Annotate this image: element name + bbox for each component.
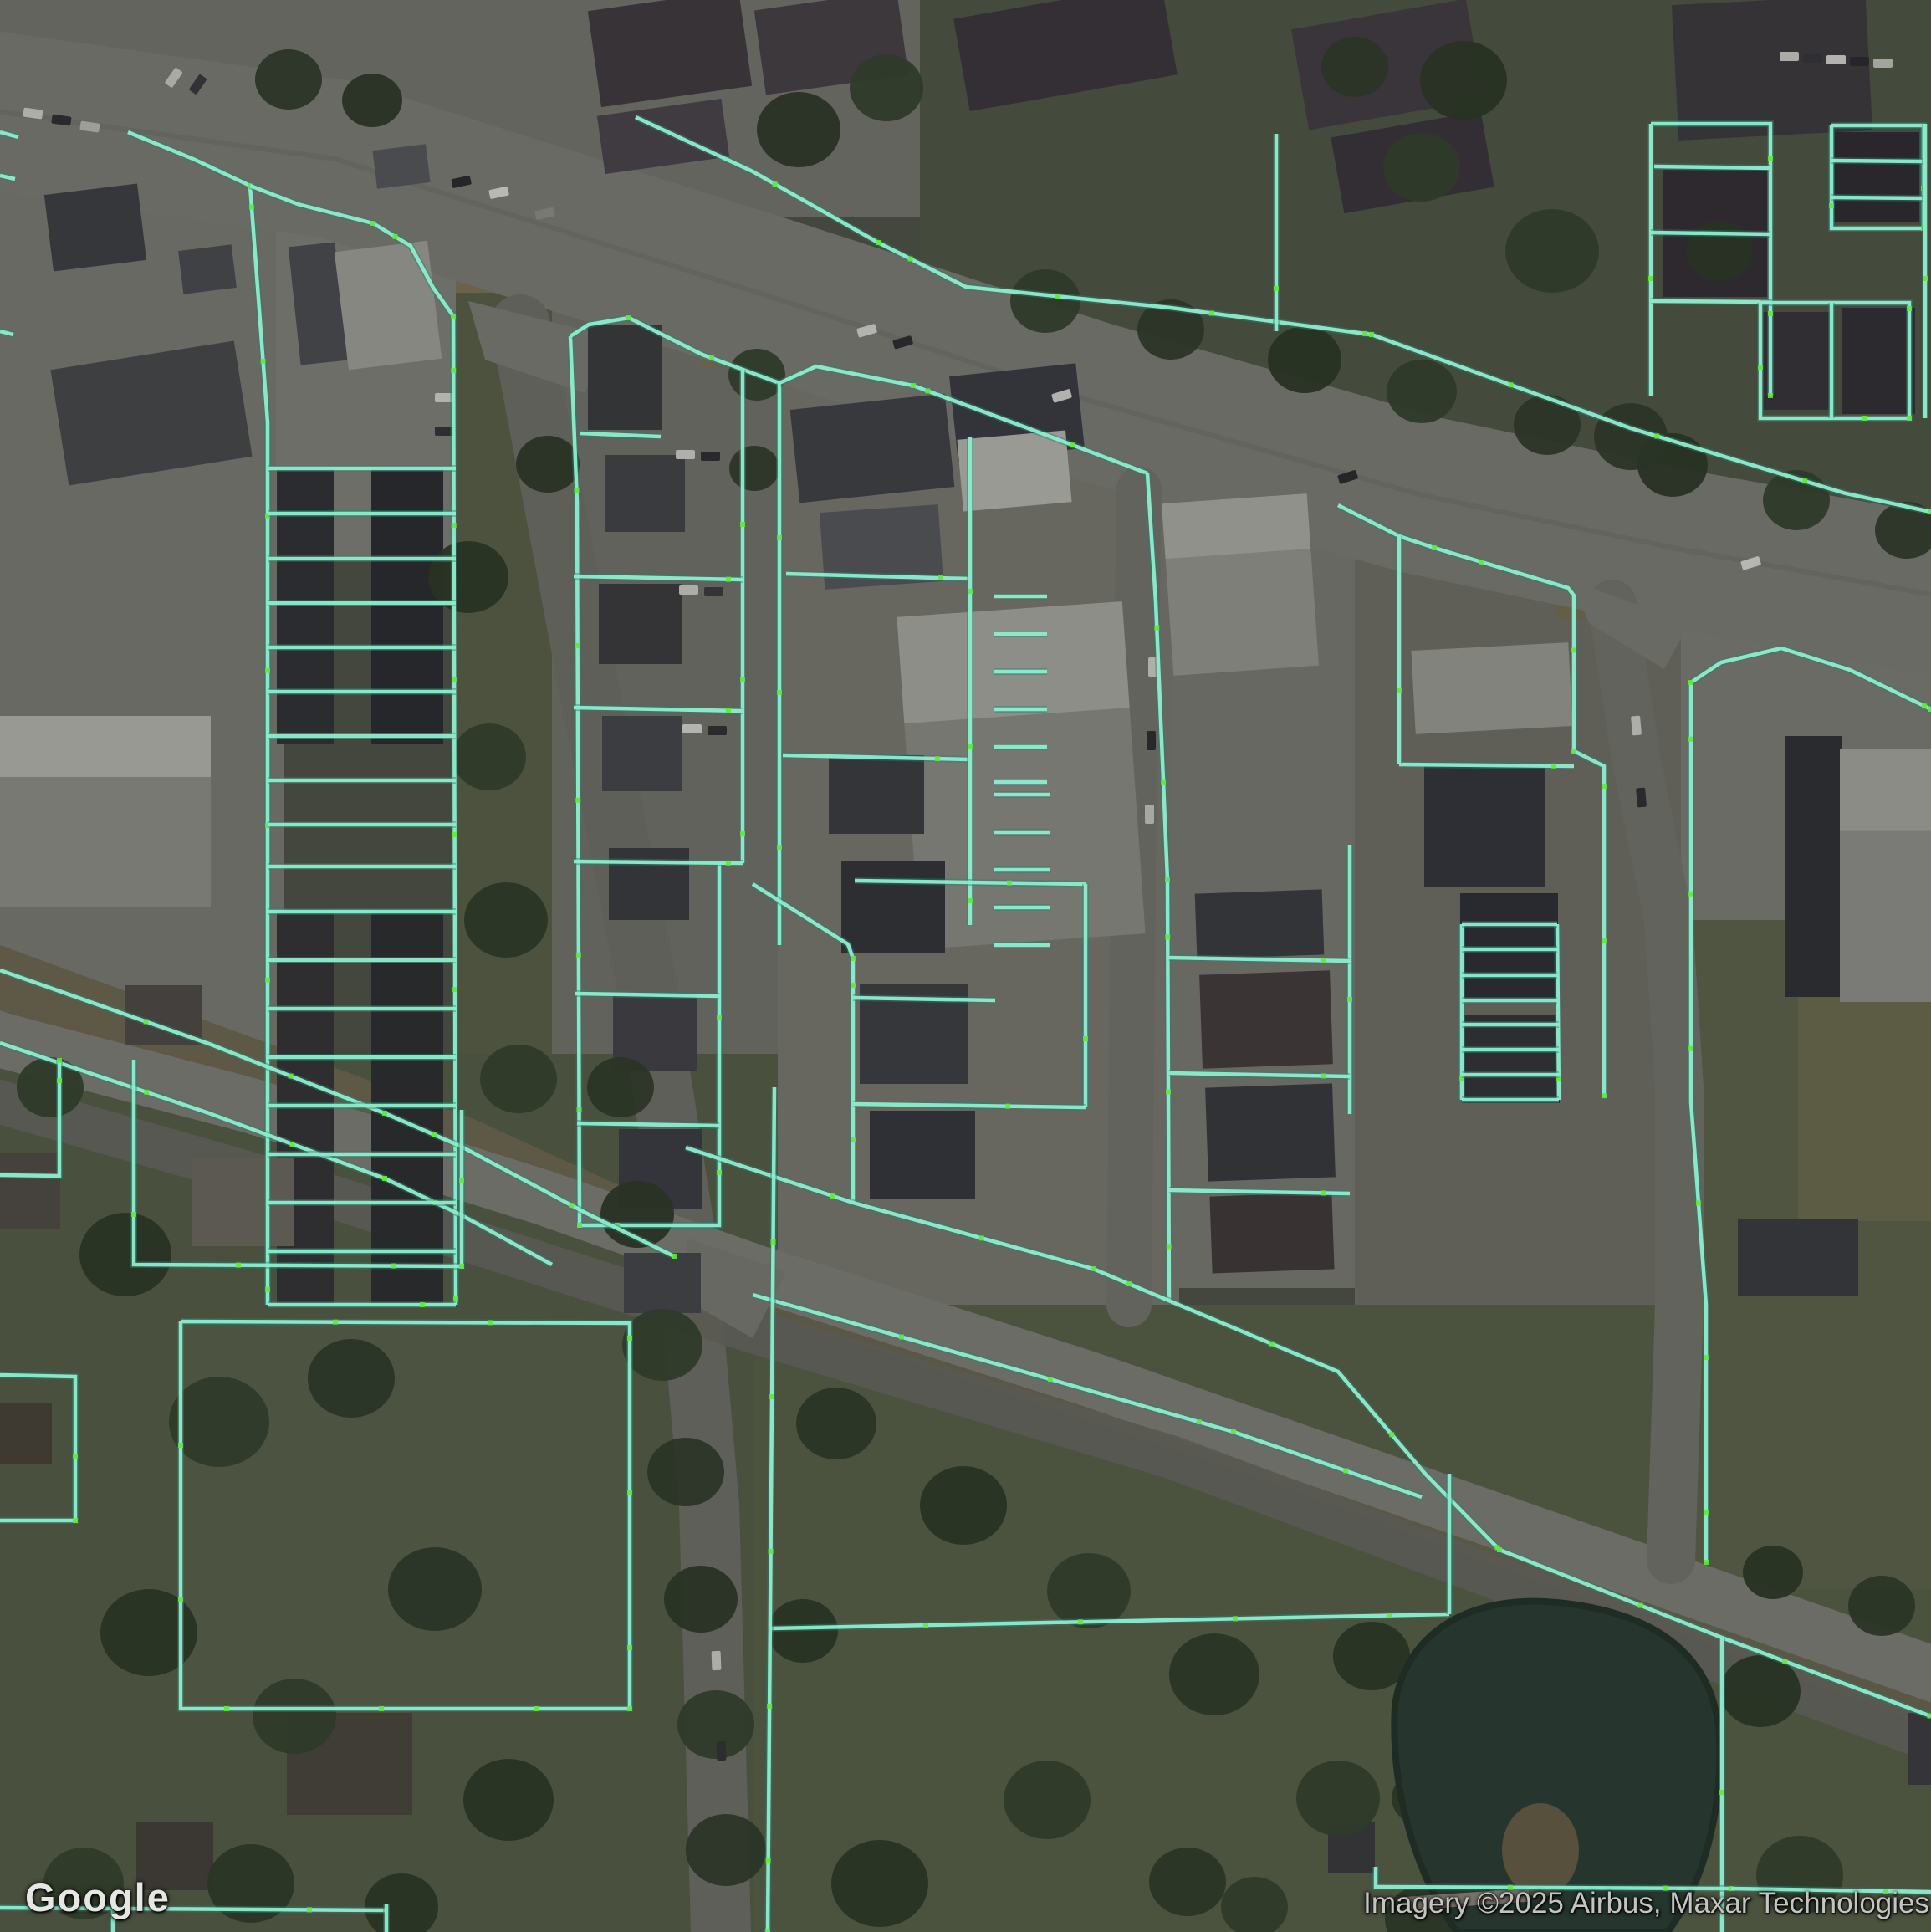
parcel-vertex-dot — [57, 1058, 62, 1063]
parcel-vertex-dot — [876, 240, 881, 245]
parcel-vertex-dot — [717, 1170, 722, 1175]
parcel-vertex-dot — [261, 359, 266, 364]
parcel-vertex-dot — [1007, 881, 1012, 886]
parcel-vertex-dot — [1369, 332, 1374, 337]
google-watermark[interactable]: Google — [25, 1874, 171, 1920]
parcel-line — [853, 998, 995, 1000]
parcel-vertex-dot — [1166, 1089, 1171, 1094]
parcel-vertex-dot — [968, 589, 973, 594]
parcel-vertex-dot — [534, 1706, 539, 1711]
parcel-vertex-dot — [432, 1132, 437, 1137]
parcel-vertex-dot — [771, 1239, 776, 1245]
parcel-vertex-dot — [224, 1706, 229, 1711]
parcel-vertex-dot — [452, 987, 457, 992]
parcel-line — [575, 994, 719, 996]
parcel-vertex-dot — [777, 845, 782, 850]
parcel-vertex-dot — [577, 1223, 582, 1228]
parcel-vertex-dot — [830, 1193, 835, 1199]
parcel-line — [1831, 197, 1923, 198]
parcel-vertex-dot — [575, 798, 580, 803]
parcel-vertex-dot — [1167, 1244, 1172, 1249]
parcel-vertex-dot — [144, 1090, 149, 1095]
parcel-vertex-dot — [726, 577, 731, 582]
parcel-vertex-dot — [851, 956, 856, 961]
parcel-vertex-dot — [766, 1858, 771, 1863]
parcel-vertex-dot — [1571, 749, 1576, 754]
parcel-vertex-dot — [382, 1176, 387, 1181]
parcel-vertex-dot — [740, 522, 745, 527]
parcel-vertex-dot — [627, 1706, 632, 1711]
parcel-vertex-dot — [769, 1549, 774, 1554]
parcel-vertex-dot — [627, 1490, 632, 1495]
parcel-vertex-dot — [453, 1296, 458, 1301]
map-viewport[interactable]: Google Imagery ©2025 Airbus, Maxar Techn… — [0, 0, 1931, 1932]
parcel-vertex-dot — [178, 1443, 183, 1448]
imagery-attribution: Imagery ©2025 Airbus, Maxar Technologies — [1363, 1887, 1929, 1920]
parcel-vertex-dot — [1269, 1342, 1275, 1347]
parcel-vertex-dot — [1602, 784, 1607, 789]
parcel-vertex-dot — [1048, 1377, 1053, 1382]
parcel-vertex-dot — [1083, 1036, 1088, 1041]
parcel-vertex-dot — [627, 1645, 632, 1650]
parcel-vertex-dot — [1688, 737, 1693, 742]
parcel-vertex-dot — [1165, 934, 1170, 939]
parcel-vertex-dot — [1638, 1603, 1643, 1608]
parcel-vertex-dot — [451, 314, 456, 319]
parcel-vertex-dot — [1005, 1104, 1010, 1109]
parcel-vertex-dot — [459, 1178, 464, 1183]
parcel-vertex-dot — [569, 1203, 574, 1208]
parcel-vertex-dot — [131, 1212, 136, 1217]
parcel-vertex-dot — [265, 1287, 270, 1292]
parcel-vertex-dot — [178, 1597, 183, 1602]
parcel-vertex-dot — [1696, 1200, 1701, 1205]
parcel-vertex-dot — [740, 677, 745, 682]
parcel-vertex-dot — [1768, 311, 1773, 316]
parcel-vertex-dot — [1343, 1469, 1348, 1474]
parcel-vertex-dot — [1165, 877, 1170, 882]
parcel-vertex-dot — [726, 708, 731, 713]
parcel-vertex-dot — [717, 1015, 722, 1020]
parcel-vertex-dot — [1688, 680, 1693, 685]
parcel-vertex-dot — [899, 1335, 904, 1340]
parcel-vertex-dot — [575, 643, 580, 648]
parcel-vertex-dot — [1479, 560, 1484, 565]
parcel-vertex-dot — [1209, 311, 1214, 316]
parcel-vertex-dot — [451, 368, 456, 373]
parcel-vertex-dot — [1387, 1613, 1392, 1618]
parcel-vertex-dot — [777, 690, 782, 695]
parcel-vertex-dot — [1927, 1713, 1931, 1718]
parcel-vertex-dot — [576, 953, 581, 958]
parcel-vertex-dot — [73, 1454, 78, 1459]
parcel-vertex-dot — [938, 575, 943, 580]
parcel-vertex-dot — [1602, 938, 1607, 943]
parcel-vertex-dot — [740, 831, 745, 836]
parcel-vertex-dot — [1055, 294, 1060, 299]
parcel-vertex-dot — [1704, 1510, 1709, 1515]
parcel-vertex-dot — [452, 677, 457, 682]
parcel-vertex-dot — [265, 978, 270, 983]
parcel-vertex-dot — [851, 1137, 856, 1142]
parcel-vertex-dot — [1347, 997, 1352, 1002]
parcel-vertex-dot — [144, 1019, 149, 1024]
parcel-vertex-dot — [1923, 276, 1928, 281]
parcel-vertex-dot — [370, 221, 375, 226]
parcel-vertex-dot — [1648, 276, 1653, 281]
parcel-vertex-dot — [1907, 306, 1912, 311]
parcel-vertex-dot — [391, 1264, 396, 1269]
parcel-vertex-dot — [1389, 1432, 1394, 1437]
parcel-vertex-dot — [382, 1111, 387, 1116]
parcel-vertex-dot — [1161, 779, 1166, 785]
parcel-vertex-dot — [1126, 1281, 1132, 1286]
parcel-vertex-dot — [1509, 382, 1514, 387]
parcel-vertex-dot — [1432, 545, 1437, 550]
parcel-vertex-dot — [73, 1518, 78, 1523]
parcel-vertex-dot — [379, 1706, 384, 1711]
parcel-vertex-dot — [1362, 331, 1367, 336]
parcel-vertex-dot — [908, 256, 913, 261]
parcel-vertex-dot — [911, 383, 916, 388]
parcel-vertex-dot — [1070, 442, 1075, 447]
parcel-vertex-dot — [1907, 416, 1912, 421]
parcel-line — [1651, 301, 1770, 302]
parcel-vertex-dot — [452, 832, 457, 837]
parcel-vertex-dot — [1862, 416, 1867, 421]
parcel-vertex-dot — [773, 181, 778, 187]
parcel-line — [1399, 764, 1574, 766]
parcel-line — [1654, 166, 1770, 168]
parcel-vertex-dot — [1719, 1790, 1724, 1795]
parcel-vertex-dot — [968, 898, 973, 903]
parcel-vertex-dot — [925, 388, 930, 393]
parcel-vertex-dot — [307, 1907, 312, 1912]
parcel-vertex-dot — [1922, 703, 1927, 708]
parcel-vertex-dot — [769, 1394, 774, 1399]
parcel-vertex-dot — [459, 1264, 464, 1269]
parcel-vertex-dot — [265, 668, 270, 673]
parcel-vertex-dot — [1274, 286, 1279, 291]
parcel-vertex-dot — [1829, 203, 1834, 208]
parcel-vertex-dot — [57, 1078, 62, 1083]
parcel-vertex-dot — [420, 1302, 425, 1307]
parcel-vertex-dot — [968, 744, 973, 749]
parcel-vertex-dot — [1321, 1073, 1326, 1078]
parcel-vertex-dot — [1231, 1429, 1236, 1434]
parcel-vertex-dot — [249, 204, 254, 209]
parcel-vertex-dot — [1704, 1560, 1709, 1565]
parcel-vertex-dot — [290, 1142, 295, 1147]
parcel-vertex-dot — [289, 1074, 294, 1079]
parcel-vertex-dot — [1704, 1355, 1709, 1360]
parcel-vertex-dot — [1782, 1659, 1787, 1664]
parcel-vertex-dot — [935, 756, 940, 761]
parcel-vertex-dot — [626, 315, 631, 320]
parcel-vertex-dot — [1397, 688, 1402, 693]
parcel-vertex-dot — [726, 861, 731, 866]
parcel-vertex-dot — [767, 1704, 772, 1709]
satellite-map[interactable] — [0, 0, 1931, 1932]
parcel-vertex-dot — [236, 1263, 241, 1268]
parcel-vertex-dot — [1802, 478, 1807, 483]
parcel-vertex-dot — [672, 1254, 677, 1259]
parcel-vertex-dot — [393, 234, 398, 239]
parcel-vertex-dot — [1091, 1266, 1096, 1271]
parcel-vertex-dot — [1321, 958, 1326, 963]
parcel-line — [574, 861, 743, 863]
parcel-vertex-dot — [979, 1235, 984, 1240]
parcel-vertex-dot — [1654, 433, 1659, 438]
parcel-line — [577, 1123, 719, 1126]
parcel-vertex-dot — [1768, 393, 1773, 398]
parcel-vertex-dot — [1551, 764, 1556, 769]
parcel-vertex-dot — [1078, 1619, 1083, 1624]
parcel-vertex-dot — [574, 488, 579, 493]
parcel-vertex-dot — [452, 523, 457, 528]
parcel-vertex-dot — [1497, 1547, 1502, 1552]
parcel-vertex-dot — [777, 535, 782, 540]
parcel-vertex-dot — [1571, 647, 1576, 652]
parcel-line — [1651, 233, 1770, 234]
parcel-vertex-dot — [1321, 1190, 1326, 1195]
parcel-vertex-dot — [627, 1336, 632, 1341]
parcel-vertex-dot — [1154, 626, 1159, 631]
parcel-line — [1831, 161, 1923, 161]
parcel-vertex-dot — [1197, 1419, 1202, 1424]
parcel-vertex-dot — [1602, 1093, 1607, 1098]
parcel-vertex-dot — [577, 1107, 582, 1112]
parcel-vertex-dot — [1688, 1046, 1693, 1051]
parcel-vertex-dot — [1758, 365, 1763, 370]
parcel-vertex-dot — [851, 983, 856, 988]
parcel-vertex-dot — [1688, 892, 1693, 897]
parcel-vertex-dot — [1768, 156, 1773, 161]
parcel-vertex-dot — [709, 355, 714, 360]
parcel-vertex-dot — [488, 1320, 493, 1325]
parcel-vertex-dot — [923, 1623, 928, 1628]
parcel-vertex-dot — [1233, 1616, 1238, 1621]
parcel-vertex-dot — [333, 1320, 338, 1325]
